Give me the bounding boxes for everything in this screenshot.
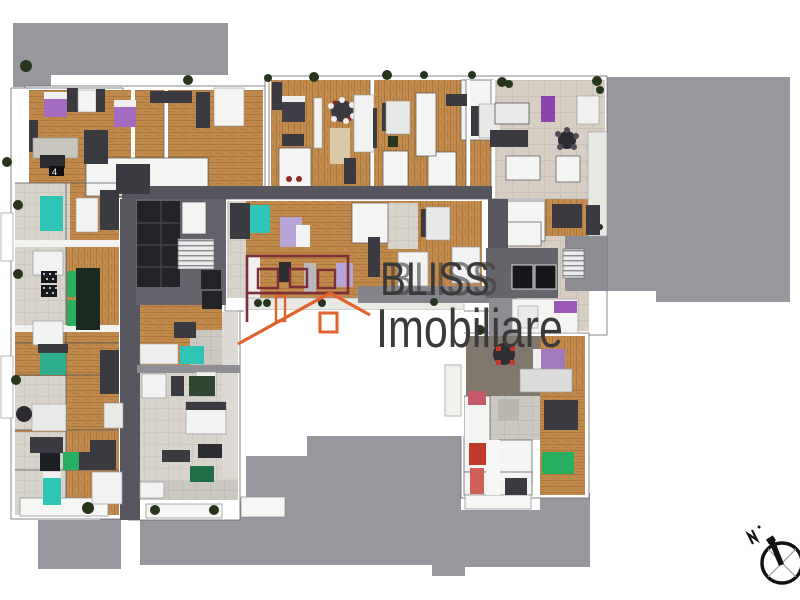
svg-text:4: 4 [52, 167, 57, 177]
svg-text:Imobiliare: Imobiliare [376, 297, 563, 359]
